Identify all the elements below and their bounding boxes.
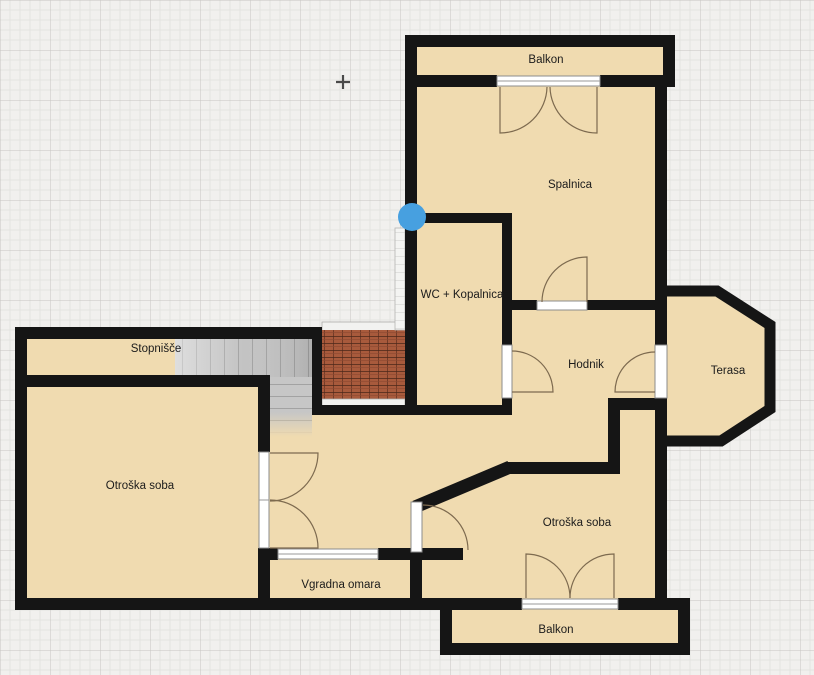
room-label-vgradna-omara: Vgradna omara — [301, 579, 381, 591]
room-hodnik-otroska[interactable] — [502, 300, 667, 610]
floor-plan-canvas[interactable]: Balkon Spalnica WC + Kopalnica Stopnišče… — [0, 0, 814, 675]
wall[interactable] — [655, 398, 667, 610]
stairs-upper-shade — [175, 339, 312, 377]
room-label-hodnik: Hodnik — [568, 359, 604, 371]
wall[interactable] — [258, 548, 278, 560]
terasa-door-frame[interactable] — [655, 345, 667, 398]
wall[interactable] — [587, 300, 667, 310]
brick-top-sill — [322, 322, 405, 331]
wall[interactable] — [505, 462, 615, 474]
hall-door-frame[interactable] — [411, 502, 422, 552]
spalnica-door-frame[interactable] — [537, 301, 587, 310]
wall[interactable] — [410, 548, 422, 610]
room-label-wc-kopalnica: WC + Kopalnica — [421, 289, 504, 301]
wall[interactable] — [312, 405, 512, 415]
wall[interactable] — [15, 327, 322, 339]
wc-hodnik-door-frame[interactable] — [502, 345, 512, 398]
room-label-terasa: Terasa — [711, 365, 746, 377]
wall[interactable] — [440, 643, 690, 655]
room-label-balkon-bottom: Balkon — [538, 624, 573, 636]
wall[interactable] — [405, 75, 417, 415]
wall[interactable] — [15, 375, 268, 387]
wall[interactable] — [678, 598, 690, 655]
brick-texture[interactable] — [322, 330, 405, 400]
room-label-stopnisce: Stopnišče — [131, 343, 182, 355]
floor-plan-editor[interactable]: Balkon Spalnica WC + Kopalnica Stopnišče… — [0, 0, 814, 675]
room-label-otroska-left: Otroška soba — [106, 480, 175, 492]
room-label-otroska-right: Otroška soba — [543, 517, 612, 529]
roof-window-strip[interactable] — [395, 228, 405, 330]
wall[interactable] — [405, 75, 497, 87]
wall[interactable] — [258, 375, 270, 452]
wall[interactable] — [312, 327, 322, 415]
room-label-balkon-top: Balkon — [528, 54, 563, 66]
wall[interactable] — [15, 327, 27, 610]
stairs-fade — [268, 412, 312, 437]
room-label-spalnica: Spalnica — [548, 179, 593, 191]
wall[interactable] — [405, 35, 675, 47]
wall[interactable] — [502, 223, 512, 345]
selection-handle-icon[interactable] — [398, 203, 426, 231]
